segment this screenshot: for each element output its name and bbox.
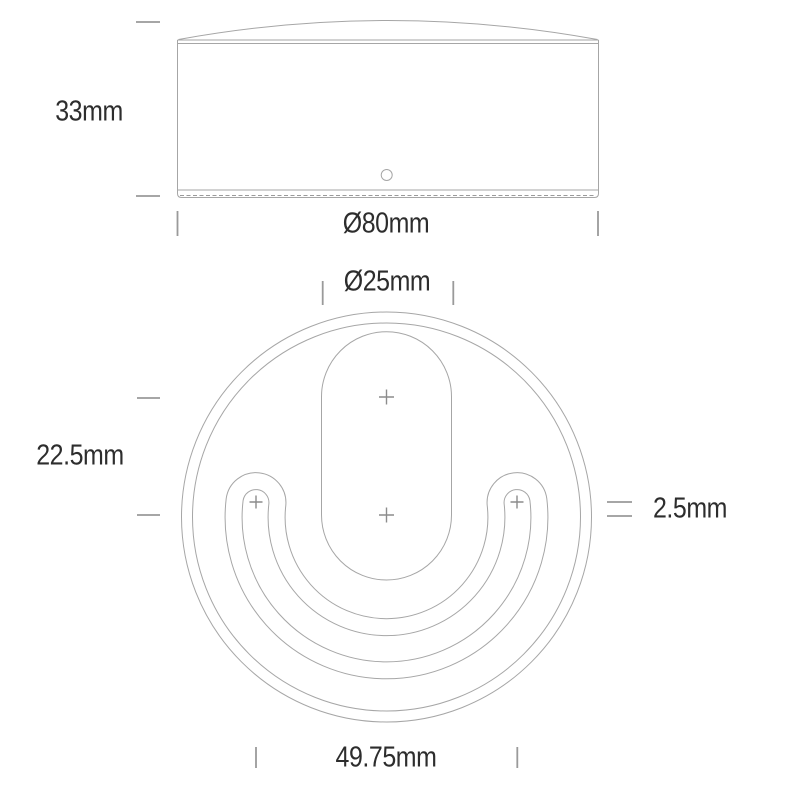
slot-width-dimension-text: 2.5mm [653,495,727,524]
top-view-dimension-ticks [137,281,632,768]
side-view-drawing [178,21,599,198]
height-dimension-label: 33mm [50,98,129,127]
right-screw-hole-cross-mark [511,496,524,509]
pill-top-cross-mark [379,390,394,405]
screw-spacing-dimension-text: 49.75mm [336,744,437,773]
pill-bottom-cross-mark [379,508,394,523]
puck-button-circle [381,170,392,181]
pill-width-dimension-label: Ø25mm [337,268,438,297]
hole-spacing-dimension-text: 22.5mm [36,442,124,471]
height-dimension-text: 33mm [55,98,123,127]
slot-width-dimension-label: 2.5mm [647,495,733,524]
puck-top-seam [178,40,599,44]
pill-width-dimension-text: Ø25mm [344,268,431,297]
left-screw-hole-cross-mark [250,496,263,509]
puck-body-outline [178,40,599,198]
side-view-dimension-ticks [136,22,598,236]
diameter-dimension-label: Ø80mm [336,210,437,239]
screw-spacing-dimension-label: 49.75mm [327,744,444,773]
curved-slot-outer-outline [225,473,548,679]
diameter-dimension-text: Ø80mm [343,210,430,239]
dimension-drawing-page: 33mm Ø80mm Ø25mm 22.5mm 2.5mm 49.75mm [0,0,800,800]
puck-dome-outline [179,21,598,40]
center-cross-marks [250,390,524,523]
center-pill-cutout [322,332,452,580]
hole-spacing-dimension-label: 22.5mm [29,442,131,471]
